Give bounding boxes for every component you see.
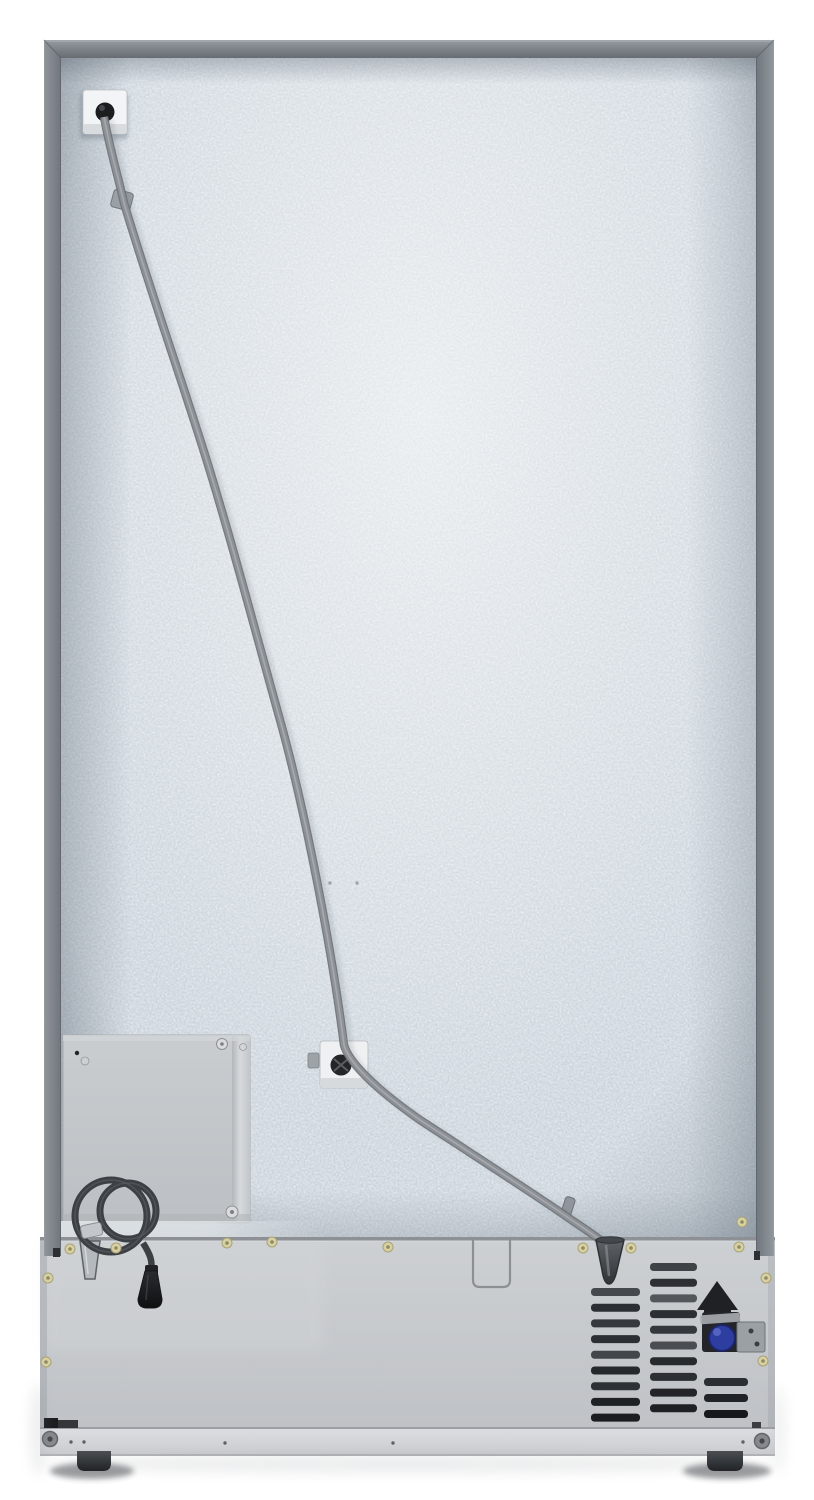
bolt-right-center [759, 1438, 764, 1443]
vent-slat [650, 1357, 697, 1365]
kick-plate-dot [82, 1440, 85, 1443]
vent-slat [591, 1304, 640, 1312]
kick-plate-dot [69, 1440, 72, 1443]
access-panel-screw-slot [230, 1210, 234, 1214]
kick-plate-rail [40, 1428, 775, 1456]
panel-top-shade [61, 58, 757, 84]
edge-shadow-left [30, 1384, 46, 1476]
valve-mount-plate [737, 1322, 765, 1352]
pin-hole [328, 881, 331, 884]
vent-slat [704, 1394, 748, 1402]
base-shadow [43, 1455, 773, 1473]
vent-slat [591, 1382, 640, 1390]
screw [578, 1243, 588, 1253]
frame-right-end-step [754, 1251, 760, 1260]
frame-top-rail [44, 40, 774, 58]
pin-hole [355, 881, 358, 884]
foot-right [707, 1451, 743, 1471]
vent-slat [591, 1367, 640, 1375]
screw [383, 1242, 393, 1252]
screw [222, 1238, 232, 1248]
funnel-mouth [596, 1237, 624, 1243]
mid-clamp-bevel [320, 1078, 368, 1088]
screw [761, 1273, 771, 1283]
frame-left-end-step [53, 1248, 60, 1257]
access-panel-screw [240, 1044, 247, 1051]
vent-slat [591, 1319, 640, 1327]
vent-slat [650, 1404, 697, 1412]
screw [737, 1217, 747, 1227]
vent-slat [591, 1288, 640, 1296]
screw [267, 1237, 277, 1247]
compartment-seam [40, 1237, 775, 1241]
bolt-left-center [47, 1436, 52, 1441]
screw [41, 1357, 51, 1367]
photo-canvas [0, 0, 814, 1500]
access-panel-pin [75, 1051, 79, 1055]
frame-left-rail [44, 40, 61, 1256]
foot-left [77, 1451, 111, 1471]
screw [758, 1356, 768, 1366]
vent-slat [650, 1310, 697, 1318]
vent-slat [591, 1351, 640, 1359]
valve-solenoid-highlight [713, 1328, 721, 1336]
vent-slat [650, 1389, 697, 1397]
vent-slat [650, 1279, 697, 1287]
vent-slat [650, 1342, 697, 1350]
access-panel-screw-slot [220, 1042, 224, 1046]
mid-clamp-tab [308, 1053, 319, 1068]
frame-right-rail [756, 40, 774, 1256]
vent-slat [591, 1414, 640, 1422]
corner-notch [752, 1422, 761, 1428]
screw [65, 1244, 75, 1254]
access-panel-fold [232, 1036, 250, 1222]
vent-slat [704, 1378, 748, 1386]
vent-slat [591, 1398, 640, 1406]
top-bracket-hole-highlight [99, 105, 105, 111]
screw [43, 1273, 53, 1283]
access-panel-screw [81, 1057, 89, 1065]
kick-plate-top-line [40, 1427, 775, 1429]
vent-slat [650, 1263, 697, 1271]
screw [111, 1243, 121, 1253]
kick-plate-dot [741, 1440, 744, 1443]
access-panel-face [63, 1035, 250, 1223]
panel-right-shade [687, 58, 757, 1240]
valve-solenoid [709, 1325, 735, 1351]
valve-plate-hole [755, 1342, 760, 1347]
kick-plate-dot [223, 1441, 226, 1444]
screw [734, 1242, 744, 1252]
vent-slat [650, 1294, 697, 1302]
valve-plate-hole [749, 1329, 754, 1334]
vent-slat [704, 1410, 748, 1418]
vent-slat [591, 1335, 640, 1343]
screw [626, 1243, 636, 1253]
product-photo-refrigerator-back [0, 0, 814, 1500]
access-panel [63, 1035, 250, 1223]
vent-slat [650, 1373, 697, 1381]
compartment-seam-highlight [40, 1241, 775, 1243]
edge-shadow-right [772, 1386, 786, 1474]
kick-plate-dot [391, 1441, 394, 1444]
vent-slat [650, 1326, 697, 1334]
corner-bracket [44, 1418, 58, 1428]
corner-bracket-arm [58, 1420, 78, 1428]
